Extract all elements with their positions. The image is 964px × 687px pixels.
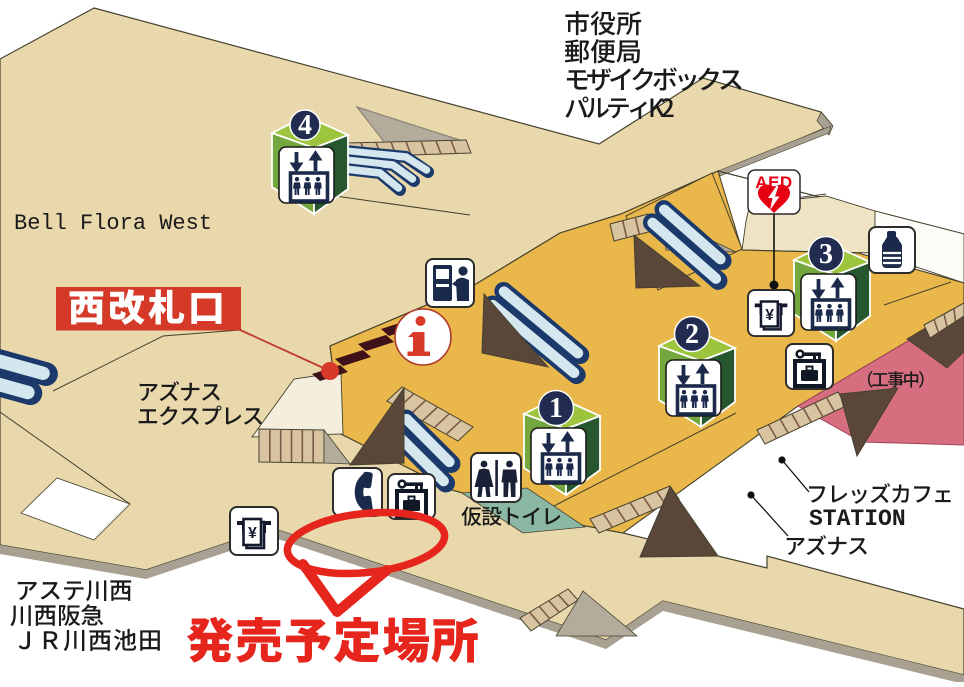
svg-text:ＪＲ川西池田: ＪＲ川西池田 bbox=[13, 621, 163, 656]
svg-text:アズナス: アズナス bbox=[784, 529, 868, 561]
svg-text:¥: ¥ bbox=[765, 307, 774, 324]
svg-text:¥: ¥ bbox=[248, 525, 257, 542]
svg-text:3: 3 bbox=[819, 239, 833, 270]
svg-text:発売予定場所: 発売予定場所 bbox=[186, 602, 480, 672]
svg-text:Bell Flora West: Bell Flora West bbox=[14, 211, 212, 236]
svg-text:フレッズカフェ: フレッズカフェ bbox=[806, 477, 953, 509]
svg-text:エクスプレス: エクスプレス bbox=[137, 399, 263, 431]
svg-text:パルティK2: パルティK2 bbox=[564, 89, 674, 125]
svg-text:（工事中）: （工事中） bbox=[856, 367, 934, 392]
svg-text:仮設トイレ: 仮設トイレ bbox=[460, 501, 561, 531]
svg-text:4: 4 bbox=[298, 110, 312, 141]
svg-text:西改札口: 西改札口 bbox=[68, 278, 228, 332]
svg-text:2: 2 bbox=[685, 319, 699, 350]
svg-text:1: 1 bbox=[549, 393, 563, 424]
